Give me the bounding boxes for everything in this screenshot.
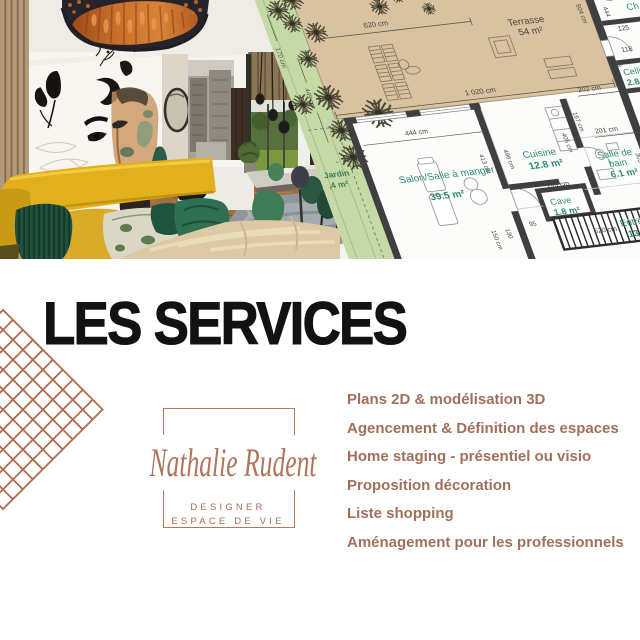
svg-text:Entrée: Entrée xyxy=(619,216,640,230)
svg-text:2.8 m²: 2.8 m² xyxy=(625,75,640,87)
svg-text:Cellier: Cellier xyxy=(622,65,640,77)
svg-text:Nathalie Rudent: Nathalie Rudent xyxy=(149,441,317,485)
svg-text:125: 125 xyxy=(617,25,631,33)
